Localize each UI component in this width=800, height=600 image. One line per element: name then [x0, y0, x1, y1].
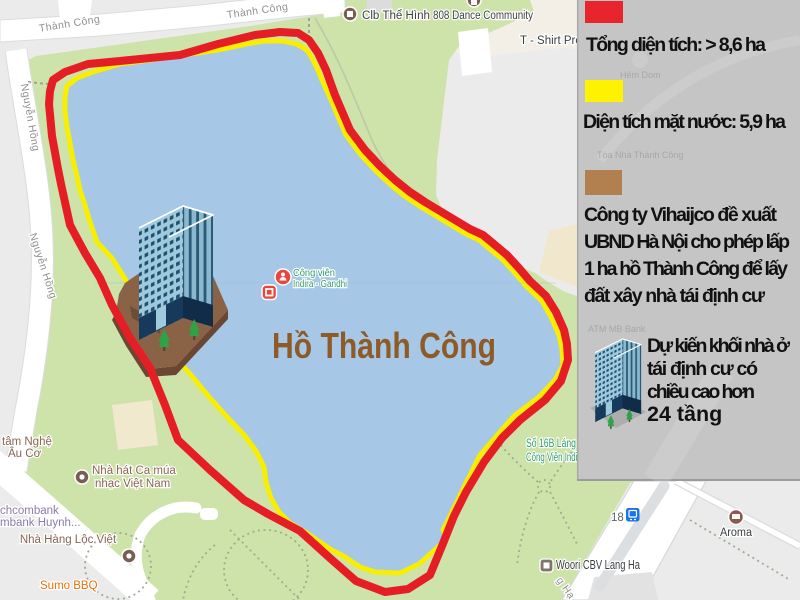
svg-text:Công viên: Công viên: [293, 268, 335, 279]
svg-text:Công Viên Indir: Công Viên Indir: [526, 452, 580, 464]
svg-text:Âu Cơ: Âu Cơ: [8, 447, 42, 460]
svg-text:Công ty Vihaijco đề xuất: Công ty Vihaijco đề xuất: [584, 204, 778, 226]
svg-text:tâm Nghệ: tâm Nghệ: [2, 436, 52, 448]
svg-text:Sumo BBQ: Sumo BBQ: [40, 580, 98, 592]
svg-text:Hẻm Dom: Hẻm Dom: [620, 70, 661, 80]
svg-text:Indira - Gandhi: Indira - Gandhi: [293, 279, 347, 290]
svg-text:1 ha hồ Thành Công để lấy: 1 ha hồ Thành Công để lấy: [584, 258, 788, 280]
svg-text:UBND Hà Nội cho phép lấp: UBND Hà Nội cho phép lấp: [584, 231, 790, 253]
svg-text:Nhà hát Ca múa: Nhà hát Ca múa: [92, 465, 176, 477]
svg-text:Woori CBV Lang Ha: Woori CBV Lang Ha: [556, 558, 640, 572]
svg-text:Aroma: Aroma: [720, 527, 753, 539]
svg-text:nhạc Việt Nam: nhạc Việt Nam: [95, 478, 170, 490]
svg-text:mbank Huynh...: mbank Huynh...: [0, 517, 81, 529]
svg-text:đất xây nhà tái định cư: đất xây nhà tái định cư: [584, 285, 766, 307]
svg-text:18: 18: [611, 512, 624, 524]
svg-text:Hồ Thành Công: Hồ Thành Công: [272, 325, 496, 366]
svg-text:Tổng diện tích: > 8,6 ha: Tổng diện tích: > 8,6 ha: [586, 34, 766, 56]
svg-text:808 Dance Community: 808 Dance Community: [433, 10, 533, 22]
svg-text:Số 16B Láng: Số 16B Láng: [526, 438, 576, 450]
svg-text:chcombank: chcombank: [0, 505, 59, 517]
svg-text:Nhà Hàng Lộc Việt: Nhà Hàng Lộc Việt: [20, 534, 117, 546]
svg-text:24 tầng: 24 tầng: [647, 402, 722, 426]
svg-text:Clb Thể Hình: Clb Thể Hình: [362, 10, 430, 22]
svg-text:tái định cư có: tái định cư có: [647, 358, 758, 380]
svg-text:chiều cao hơn: chiều cao hơn: [647, 381, 755, 403]
svg-text:Dự kiến khối nhà ở: Dự kiến khối nhà ở: [647, 335, 790, 357]
svg-text:ATM MB Bank: ATM MB Bank: [588, 324, 646, 334]
svg-text:Diện tích mặt nước: 5,9 ha: Diện tích mặt nước: 5,9 ha: [583, 111, 786, 133]
svg-text:Tòa Nhà Thành Công: Tòa Nhà Thành Công: [597, 150, 683, 160]
